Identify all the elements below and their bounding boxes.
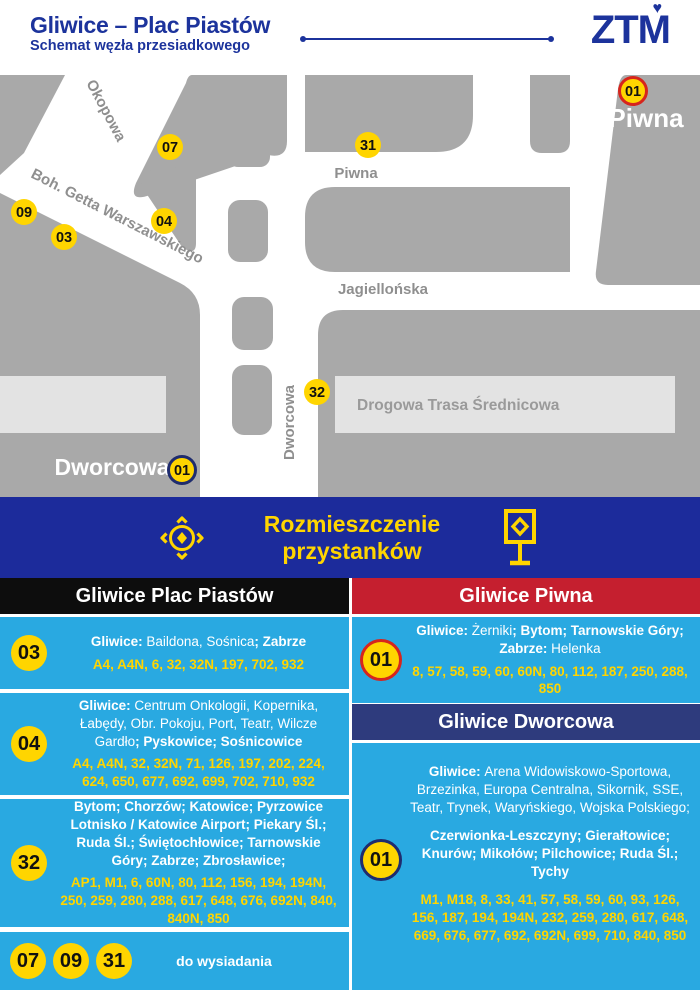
- line-numbers: AP1, M1, 6, 60N, 80, 112, 156, 194, 194N…: [58, 874, 339, 928]
- banner-title-line1: Rozmieszczenie: [264, 511, 440, 538]
- area-label-piwna: Piwna: [608, 103, 684, 133]
- banner-title-line2: przystanków: [264, 538, 440, 565]
- line-numbers: A4, A4N, 32, 32N, 71, 126, 197, 202, 224…: [58, 755, 339, 791]
- poster-page: Gliwice – Plac Piastów Schemat węzła prz…: [0, 0, 700, 990]
- marker-number: 31: [360, 138, 376, 154]
- page-subtitle: Schemat węzła przesiadkowego: [30, 38, 250, 54]
- destinations-region: Czerwionka-Leszczyny; Gierałtowice; Knur…: [410, 827, 690, 881]
- block-center-north: [305, 75, 473, 152]
- street-label-dts: Drogowa Trasa Średnicowa: [357, 396, 560, 414]
- stop-marker-32: 32: [304, 379, 330, 405]
- entry-04: 04 Gliwice: Centrum Onkologii, Kopernika…: [0, 693, 349, 795]
- stop-badge-07: 07: [10, 943, 46, 979]
- block-small-north: [530, 75, 570, 153]
- entry-01-dworcowa-text: Gliwice: Arena Widowiskowo-Sportowa, Brz…: [410, 743, 700, 945]
- street-label-okopowa: Okopowa: [82, 77, 129, 145]
- exit-only-row: 07 09 31 do wysiadania: [0, 932, 349, 990]
- marker-number: 07: [162, 140, 178, 156]
- stop-marker-03: 03: [51, 224, 77, 250]
- entry-32-text: Bytom; Chorzów; Katowice; Pyrzowice Lotn…: [58, 798, 349, 929]
- header-piwna: Gliwice Piwna: [352, 578, 700, 614]
- destinations: Gliwice: Żerniki; Bytom; Tarnowskie Góry…: [410, 622, 690, 658]
- marker-number: 04: [156, 214, 172, 230]
- stop-marker-01-piwna: 01: [620, 78, 647, 105]
- block-center-south: [305, 187, 570, 272]
- ztm-logo: ZTM♥: [591, 10, 670, 50]
- entry-32: 32 Bytom; Chorzów; Katowice; Pyrzowice L…: [0, 799, 349, 927]
- destinations: Bytom; Chorzów; Katowice; Pyrzowice Lotn…: [58, 798, 339, 870]
- header-divider-line: [304, 38, 550, 40]
- median-island: [232, 365, 272, 435]
- badge-col: 32: [0, 845, 58, 881]
- highway-west: [0, 376, 166, 433]
- stop-marker-07: 07: [157, 134, 183, 160]
- entry-04-text: Gliwice: Centrum Onkologii, Kopernika, Ł…: [58, 697, 349, 792]
- stop-badge-31: 31: [96, 943, 132, 979]
- marker-number: 01: [174, 463, 190, 479]
- street-label-piwna: Piwna: [334, 165, 378, 182]
- compass-icon: [160, 516, 204, 560]
- badge-col: 04: [0, 726, 58, 762]
- entry-03: 03 Gliwice: Baildona, Sośnica; Zabrze A4…: [0, 617, 349, 689]
- area-label-dworcowa: Dworcowa: [54, 454, 169, 480]
- median-island: [228, 137, 270, 167]
- stop-badge-01-dworcowa: 01: [360, 839, 402, 881]
- badge-col: 01: [352, 639, 410, 681]
- section-banner: Rozmieszczenie przystanków: [0, 497, 700, 578]
- median-island: [232, 297, 273, 350]
- stop-marker-01-dworcowa: 01: [169, 457, 196, 484]
- banner-title: Rozmieszczenie przystanków: [264, 511, 440, 565]
- interchange-map: Okopowa Boh. Getta Warszawskiego Piwna J…: [0, 75, 700, 497]
- destinations: Gliwice: Baildona, Sośnica; Zabrze: [58, 633, 339, 651]
- marker-number: 09: [16, 205, 32, 221]
- stop-badge-04: 04: [11, 726, 47, 762]
- stop-marker-04: 04: [151, 208, 177, 234]
- page-title: Gliwice – Plac Piastów: [30, 12, 270, 39]
- marker-number: 01: [625, 84, 641, 100]
- exit-only-label: do wysiadania: [139, 953, 349, 969]
- highway-band: [0, 376, 675, 433]
- header-plac-piastow: Gliwice Plac Piastów: [0, 578, 349, 614]
- entry-01-dworcowa: 01 Gliwice: Arena Widowiskowo-Sportowa, …: [352, 743, 700, 990]
- line-numbers: 8, 57, 58, 59, 60, 60N, 80, 112, 187, 25…: [410, 663, 690, 699]
- header-dworcowa: Gliwice Dworcowa: [352, 704, 700, 740]
- stop-marker-09: 09: [11, 199, 37, 225]
- street-label-dworcowa: Dworcowa: [281, 384, 298, 460]
- stop-marker-31: 31: [355, 132, 381, 158]
- destinations: Gliwice: Centrum Onkologii, Kopernika, Ł…: [58, 697, 339, 751]
- badge-col: 03: [0, 635, 58, 671]
- line-numbers: A4, A4N, 6, 32, 32N, 197, 702, 932: [58, 656, 339, 674]
- column-plac-piastow: Gliwice Plac Piastów 03 Gliwice: Baildon…: [0, 578, 349, 990]
- destinations-gliwice: Gliwice: Arena Widowiskowo-Sportowa, Brz…: [410, 763, 690, 817]
- stop-badge-09: 09: [53, 943, 89, 979]
- marker-number: 03: [56, 230, 72, 246]
- entry-01-piwna-text: Gliwice: Żerniki; Bytom; Tarnowskie Góry…: [410, 622, 700, 699]
- heart-icon: ♥: [653, 1, 662, 17]
- badge-col: 01: [352, 839, 410, 881]
- bus-stop-icon: [500, 508, 540, 568]
- line-numbers: M1, M18, 8, 33, 41, 57, 58, 59, 60, 93, …: [410, 891, 690, 945]
- street-label-jagiellonska: Jagiellońska: [338, 281, 429, 298]
- stop-listing-panels: Gliwice Plac Piastów 03 Gliwice: Baildon…: [0, 578, 700, 990]
- entry-01-piwna: 01 Gliwice: Żerniki; Bytom; Tarnowskie G…: [352, 617, 700, 703]
- marker-number: 32: [309, 385, 325, 401]
- stop-badge-03: 03: [11, 635, 47, 671]
- stop-badge-01-piwna: 01: [360, 639, 402, 681]
- median-island: [228, 200, 268, 262]
- column-piwna-dworcowa: Gliwice Piwna 01 Gliwice: Żerniki; Bytom…: [352, 578, 700, 990]
- entry-03-text: Gliwice: Baildona, Sośnica; Zabrze A4, A…: [58, 633, 349, 674]
- block-top-left: [0, 75, 65, 175]
- header: Gliwice – Plac Piastów Schemat węzła prz…: [0, 0, 700, 75]
- stop-badge-32: 32: [11, 845, 47, 881]
